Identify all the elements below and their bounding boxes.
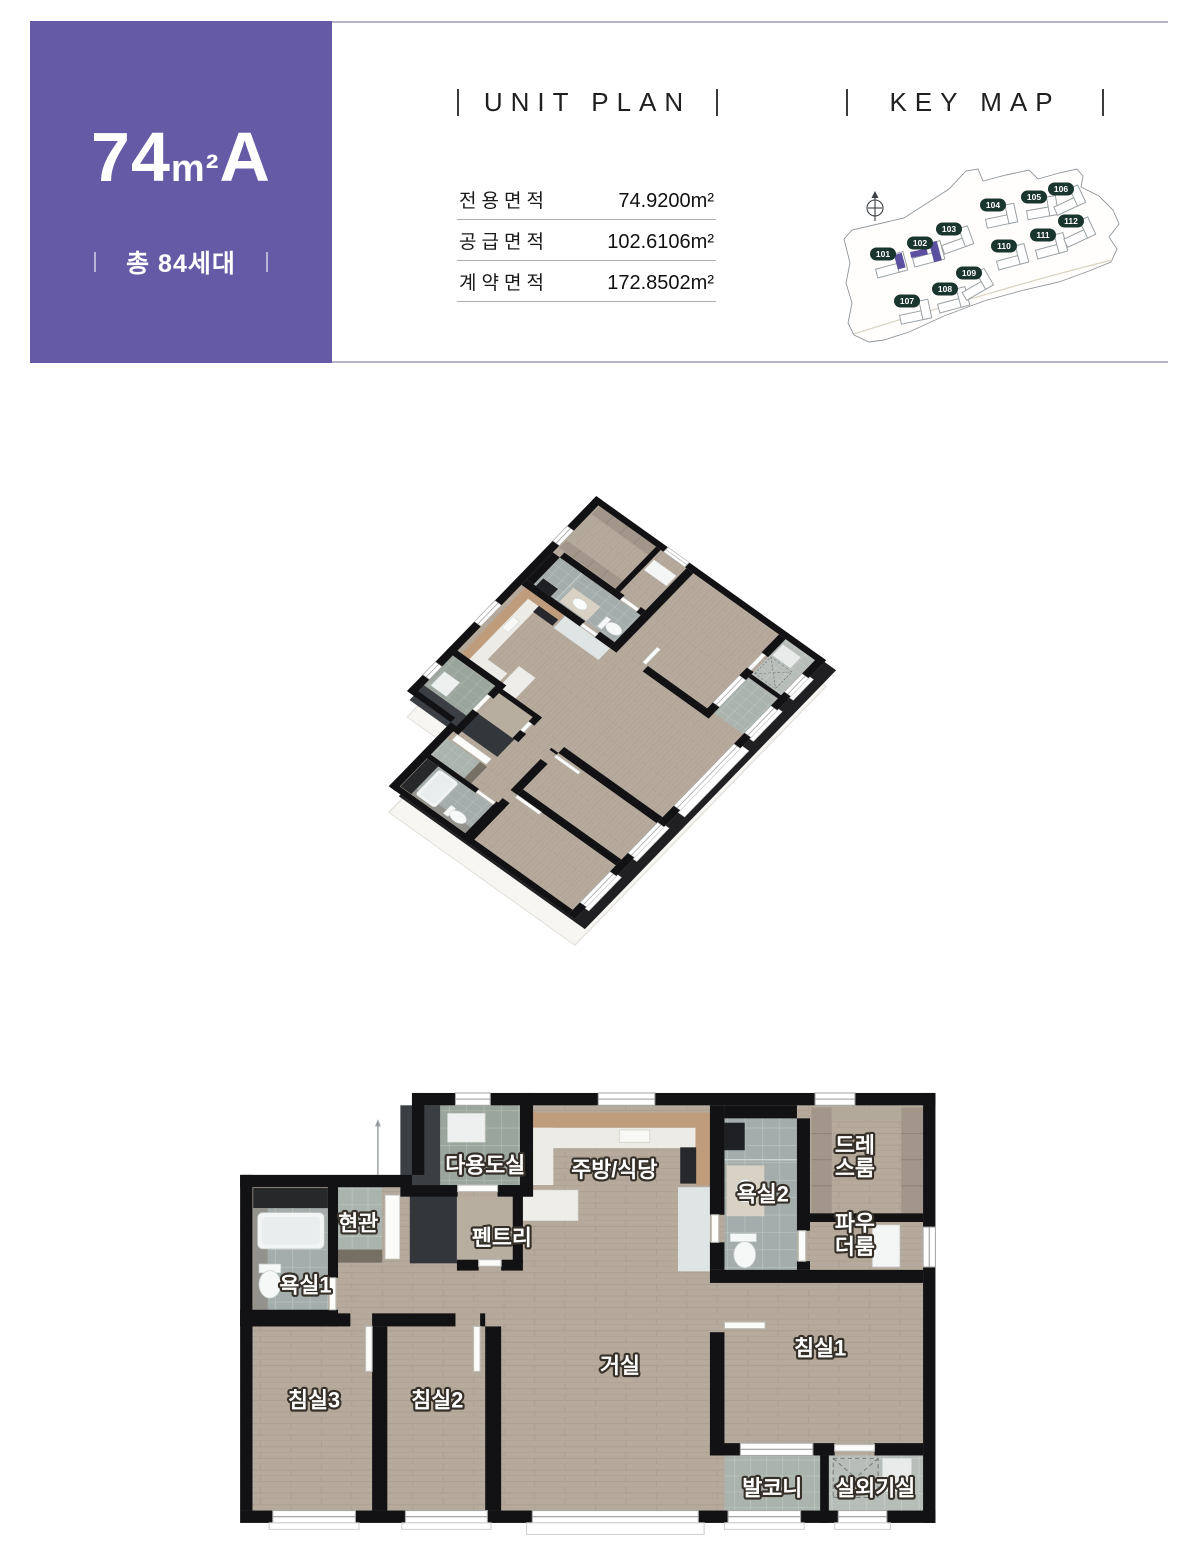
compass-icon bbox=[867, 191, 883, 221]
svg-text:112: 112 bbox=[1064, 216, 1078, 226]
area-label: 공급면적 bbox=[459, 227, 549, 254]
svg-text:104: 104 bbox=[986, 200, 1000, 210]
unit-plan-title: UNIT PLAN bbox=[457, 85, 718, 119]
svg-text:111: 111 bbox=[1036, 230, 1050, 240]
svg-text:107: 107 bbox=[900, 296, 914, 306]
building-badge-109: 109 bbox=[956, 267, 982, 280]
room-label-bedroom3: 침실3 bbox=[288, 1388, 340, 1413]
area-label: 계약면적 bbox=[459, 268, 549, 295]
unit-size-unit: m² bbox=[171, 148, 219, 190]
svg-text:103: 103 bbox=[942, 224, 956, 234]
building-badge-104: 104 bbox=[980, 199, 1006, 212]
svg-text:109: 109 bbox=[962, 268, 976, 278]
building-badge-111: 111 bbox=[1030, 229, 1056, 242]
room-label-dress-room: 드레스룸 bbox=[835, 1132, 875, 1180]
svg-text:101: 101 bbox=[876, 249, 890, 259]
room-label-powder-room: 파우더룸 bbox=[835, 1211, 875, 1259]
building-badge-105: 105 bbox=[1021, 191, 1047, 204]
page: 74m²A 총 84세대 UNIT PLAN 전용면적74.9200m²공급면적… bbox=[0, 0, 1200, 1542]
divider-bar-icon bbox=[266, 252, 268, 272]
building-badge-110: 110 bbox=[991, 240, 1017, 253]
room-label-pantry: 펜트리 bbox=[472, 1225, 532, 1250]
keymap-svg: 101102103104105106107108109110111112 bbox=[838, 151, 1132, 359]
building-badge-108: 108 bbox=[932, 283, 958, 296]
room-label-living-room: 거실 bbox=[600, 1353, 640, 1378]
divider-bar-icon bbox=[1102, 89, 1104, 116]
room-label-balcony: 발코니 bbox=[742, 1475, 802, 1500]
unit-3d-view bbox=[280, 430, 930, 990]
building-badge-102: 102 bbox=[907, 237, 933, 250]
building-badge-107: 107 bbox=[894, 295, 920, 308]
area-row: 공급면적102.6106m² bbox=[457, 220, 716, 261]
area-row: 계약면적172.8502m² bbox=[457, 261, 716, 302]
area-table: 전용면적74.9200m²공급면적102.6106m²계약면적172.8502m… bbox=[457, 179, 716, 302]
area-label: 전용면적 bbox=[459, 186, 549, 213]
svg-text:108: 108 bbox=[938, 284, 952, 294]
svg-text:110: 110 bbox=[997, 241, 1011, 251]
building-badge-103: 103 bbox=[936, 223, 962, 236]
building-badge-106: 106 bbox=[1048, 183, 1074, 196]
dimension-arrow-icon bbox=[375, 1119, 381, 1175]
room-label-bedroom2: 침실2 bbox=[411, 1388, 463, 1413]
unit-size-type: A bbox=[219, 118, 271, 196]
area-row: 전용면적74.9200m² bbox=[457, 179, 716, 220]
unit-total: 총 84세대 bbox=[94, 244, 268, 280]
area-value: 102.6106m² bbox=[607, 231, 714, 254]
room-label-ac-room: 실외기실 bbox=[835, 1475, 915, 1500]
header: 74m²A 총 84세대 UNIT PLAN 전용면적74.9200m²공급면적… bbox=[30, 21, 1168, 363]
building-badge-101: 101 bbox=[870, 248, 896, 261]
unit-size: 74m²A bbox=[91, 122, 271, 192]
room-label-utility: 다용도실 bbox=[445, 1153, 525, 1178]
area-value: 172.8502m² bbox=[607, 272, 714, 295]
room-label-bedroom1: 침실1 bbox=[794, 1335, 846, 1360]
unit-size-number: 74 bbox=[91, 118, 171, 196]
svg-text:102: 102 bbox=[913, 238, 927, 248]
unit-2d-plan: 다용도실주방/식당현관펜트리욕실1욕실2드레스룸파우더룸침실3침실2거실침실1발… bbox=[230, 1085, 980, 1542]
key-map-title: KEY MAP bbox=[846, 85, 1104, 119]
svg-text:105: 105 bbox=[1027, 192, 1041, 202]
building-badge-112: 112 bbox=[1058, 215, 1084, 228]
svg-text:106: 106 bbox=[1054, 184, 1068, 194]
room-label-kitchen-dining: 주방/식당 bbox=[571, 1157, 657, 1182]
unit-type-badge: 74m²A 총 84세대 bbox=[30, 21, 332, 363]
key-map-title-text: KEY MAP bbox=[848, 87, 1102, 118]
room-label-entrance: 현관 bbox=[338, 1211, 378, 1236]
room-label-bath1: 욕실1 bbox=[279, 1272, 331, 1297]
unit-plan-title-text: UNIT PLAN bbox=[459, 87, 716, 118]
area-value: 74.9200m² bbox=[618, 190, 714, 213]
unit-total-label: 총 84세대 bbox=[126, 244, 236, 280]
divider-bar-icon bbox=[716, 89, 718, 116]
divider-bar-icon bbox=[94, 252, 96, 272]
room-label-bath2: 욕실2 bbox=[737, 1182, 789, 1207]
